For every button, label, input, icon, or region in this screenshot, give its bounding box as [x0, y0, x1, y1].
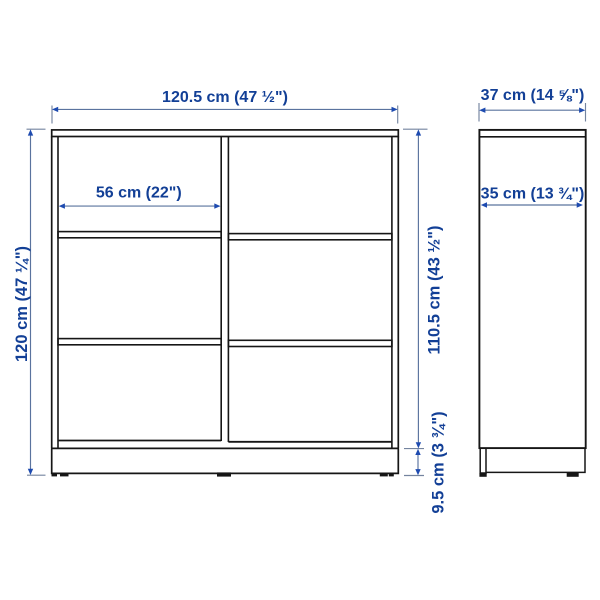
svg-text:56 cm (22"): 56 cm (22")	[96, 184, 182, 201]
svg-text:120.5 cm (47 ½"): 120.5 cm (47 ½")	[162, 89, 288, 106]
svg-text:120 cm (47 ¼"): 120 cm (47 ¼")	[13, 246, 31, 362]
svg-text:37 cm (14 ⅝"): 37 cm (14 ⅝")	[481, 87, 585, 104]
svg-text:35 cm (13 ¾"): 35 cm (13 ¾")	[481, 186, 585, 203]
svg-text:9.5 cm (3 ¾"): 9.5 cm (3 ¾")	[430, 411, 448, 513]
svg-text:110.5 cm (43 ½"): 110.5 cm (43 ½")	[425, 226, 443, 355]
